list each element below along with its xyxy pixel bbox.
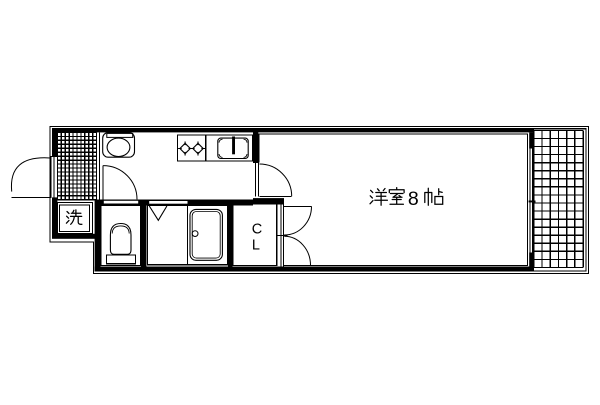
svg-text:L: L (252, 238, 260, 254)
svg-text:8: 8 (408, 188, 419, 210)
svg-text:C: C (252, 222, 262, 238)
